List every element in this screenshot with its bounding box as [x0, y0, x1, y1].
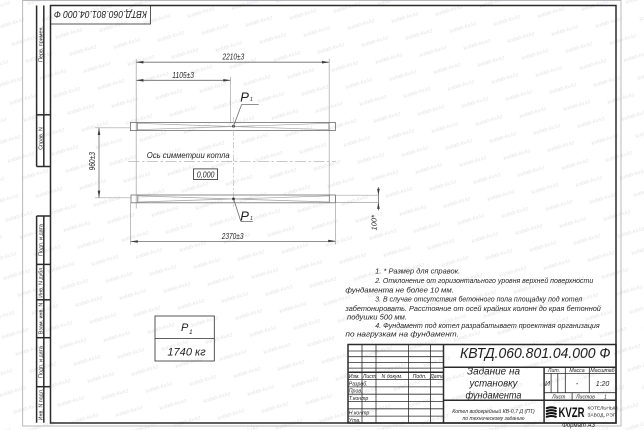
svg-text:Т.контр: Т.контр	[349, 396, 369, 402]
svg-text:100*: 100*	[370, 214, 379, 231]
svg-text:1: 1	[604, 395, 607, 401]
svg-text:Задание на: Задание на	[467, 367, 520, 378]
svg-text:3. В случае отсутствия бетонно: 3. В случае отсутствия бетонного пола пл…	[375, 295, 582, 304]
svg-text:по техническому заданию: по техническому заданию	[463, 416, 526, 422]
svg-text:1. * Размер для справок.: 1. * Размер для справок.	[375, 266, 460, 275]
svg-text:2. Отклонение от горизонтально: 2. Отклонение от горизонтального уровня …	[374, 276, 593, 285]
svg-text:КВТД.060.801.04.000 Ф: КВТД.060.801.04.000 Ф	[54, 8, 147, 20]
svg-text:Масса: Масса	[569, 368, 584, 374]
svg-text:P: P	[181, 322, 189, 334]
svg-text:Разраб.: Разраб.	[349, 381, 368, 387]
svg-text:2210±3: 2210±3	[222, 52, 245, 62]
svg-text:Формат А3: Формат А3	[562, 423, 595, 429]
svg-text:1: 1	[189, 329, 193, 336]
svg-text:1:20: 1:20	[596, 381, 610, 388]
svg-text:1: 1	[250, 97, 253, 103]
svg-text:4. Фундамент под котел разраба: 4. Фундамент под котел разрабатывает про…	[375, 321, 600, 330]
svg-text:Дата: Дата	[429, 374, 444, 380]
svg-text:ЗАВОД, РЭП: ЗАВОД, РЭП	[588, 413, 617, 419]
svg-text:960±3: 960±3	[87, 152, 97, 171]
svg-text:Изм.: Изм.	[349, 374, 360, 380]
svg-text:Подп. и дата: Подп. и дата	[39, 346, 45, 378]
svg-text:Справ. N: Справ. N	[39, 127, 45, 150]
svg-text:Н.контр: Н.контр	[349, 411, 370, 417]
svg-text:1: 1	[250, 216, 253, 222]
svg-text:1105±3: 1105±3	[172, 70, 194, 80]
svg-text:0,000: 0,000	[197, 170, 215, 180]
svg-text:по нагрузкам на фундамент.: по нагрузкам на фундамент.	[345, 330, 459, 339]
svg-text:1740 кг: 1740 кг	[167, 346, 206, 358]
svg-text:2370±3: 2370±3	[221, 231, 244, 241]
svg-text:Инв. N подл.: Инв. N подл.	[39, 389, 45, 421]
svg-text:Перв. примен.: Перв. примен.	[39, 26, 45, 62]
svg-text:Инв. N дубл.: Инв. N дубл.	[39, 266, 45, 298]
svg-text:P: P	[240, 90, 249, 105]
svg-text:-: -	[576, 381, 579, 388]
svg-text:KVZR: KVZR	[559, 404, 585, 420]
svg-text:фундамента не более 10 мм.: фундамента не более 10 мм.	[345, 285, 454, 294]
svg-text:Масштаб: Масштаб	[590, 368, 615, 374]
svg-text:N докум.: N докум.	[382, 374, 403, 380]
svg-text:Ось симметрии котла: Ось симметрии котла	[147, 151, 230, 160]
svg-text:Листов: Листов	[575, 395, 595, 401]
svg-text:Подп. и дата: Подп. и дата	[39, 224, 45, 256]
svg-text:Лист: Лист	[551, 395, 566, 401]
svg-text:Пров.: Пров.	[349, 389, 363, 395]
svg-text:КОТЕЛЬНЫЙ: КОТЕЛЬНЫЙ	[588, 404, 619, 412]
svg-text:Лит.: Лит.	[547, 368, 560, 374]
svg-text:Утв.: Утв.	[349, 418, 361, 424]
svg-text:фундамента: фундамента	[466, 389, 522, 401]
svg-text:КВТД.060.801.04.000 Ф: КВТД.060.801.04.000 Ф	[460, 345, 611, 362]
svg-text:P: P	[240, 208, 249, 223]
svg-text:установку: установку	[469, 379, 519, 390]
svg-text:Подп.: Подп.	[413, 374, 427, 380]
svg-text:Взам. инв. N: Взам. инв. N	[39, 303, 45, 335]
svg-text:Лист: Лист	[362, 374, 377, 380]
svg-text:Котел водогрейный КВ-0,7 Д (ПТ: Котел водогрейный КВ-0,7 Д (ПТ)	[452, 408, 535, 415]
